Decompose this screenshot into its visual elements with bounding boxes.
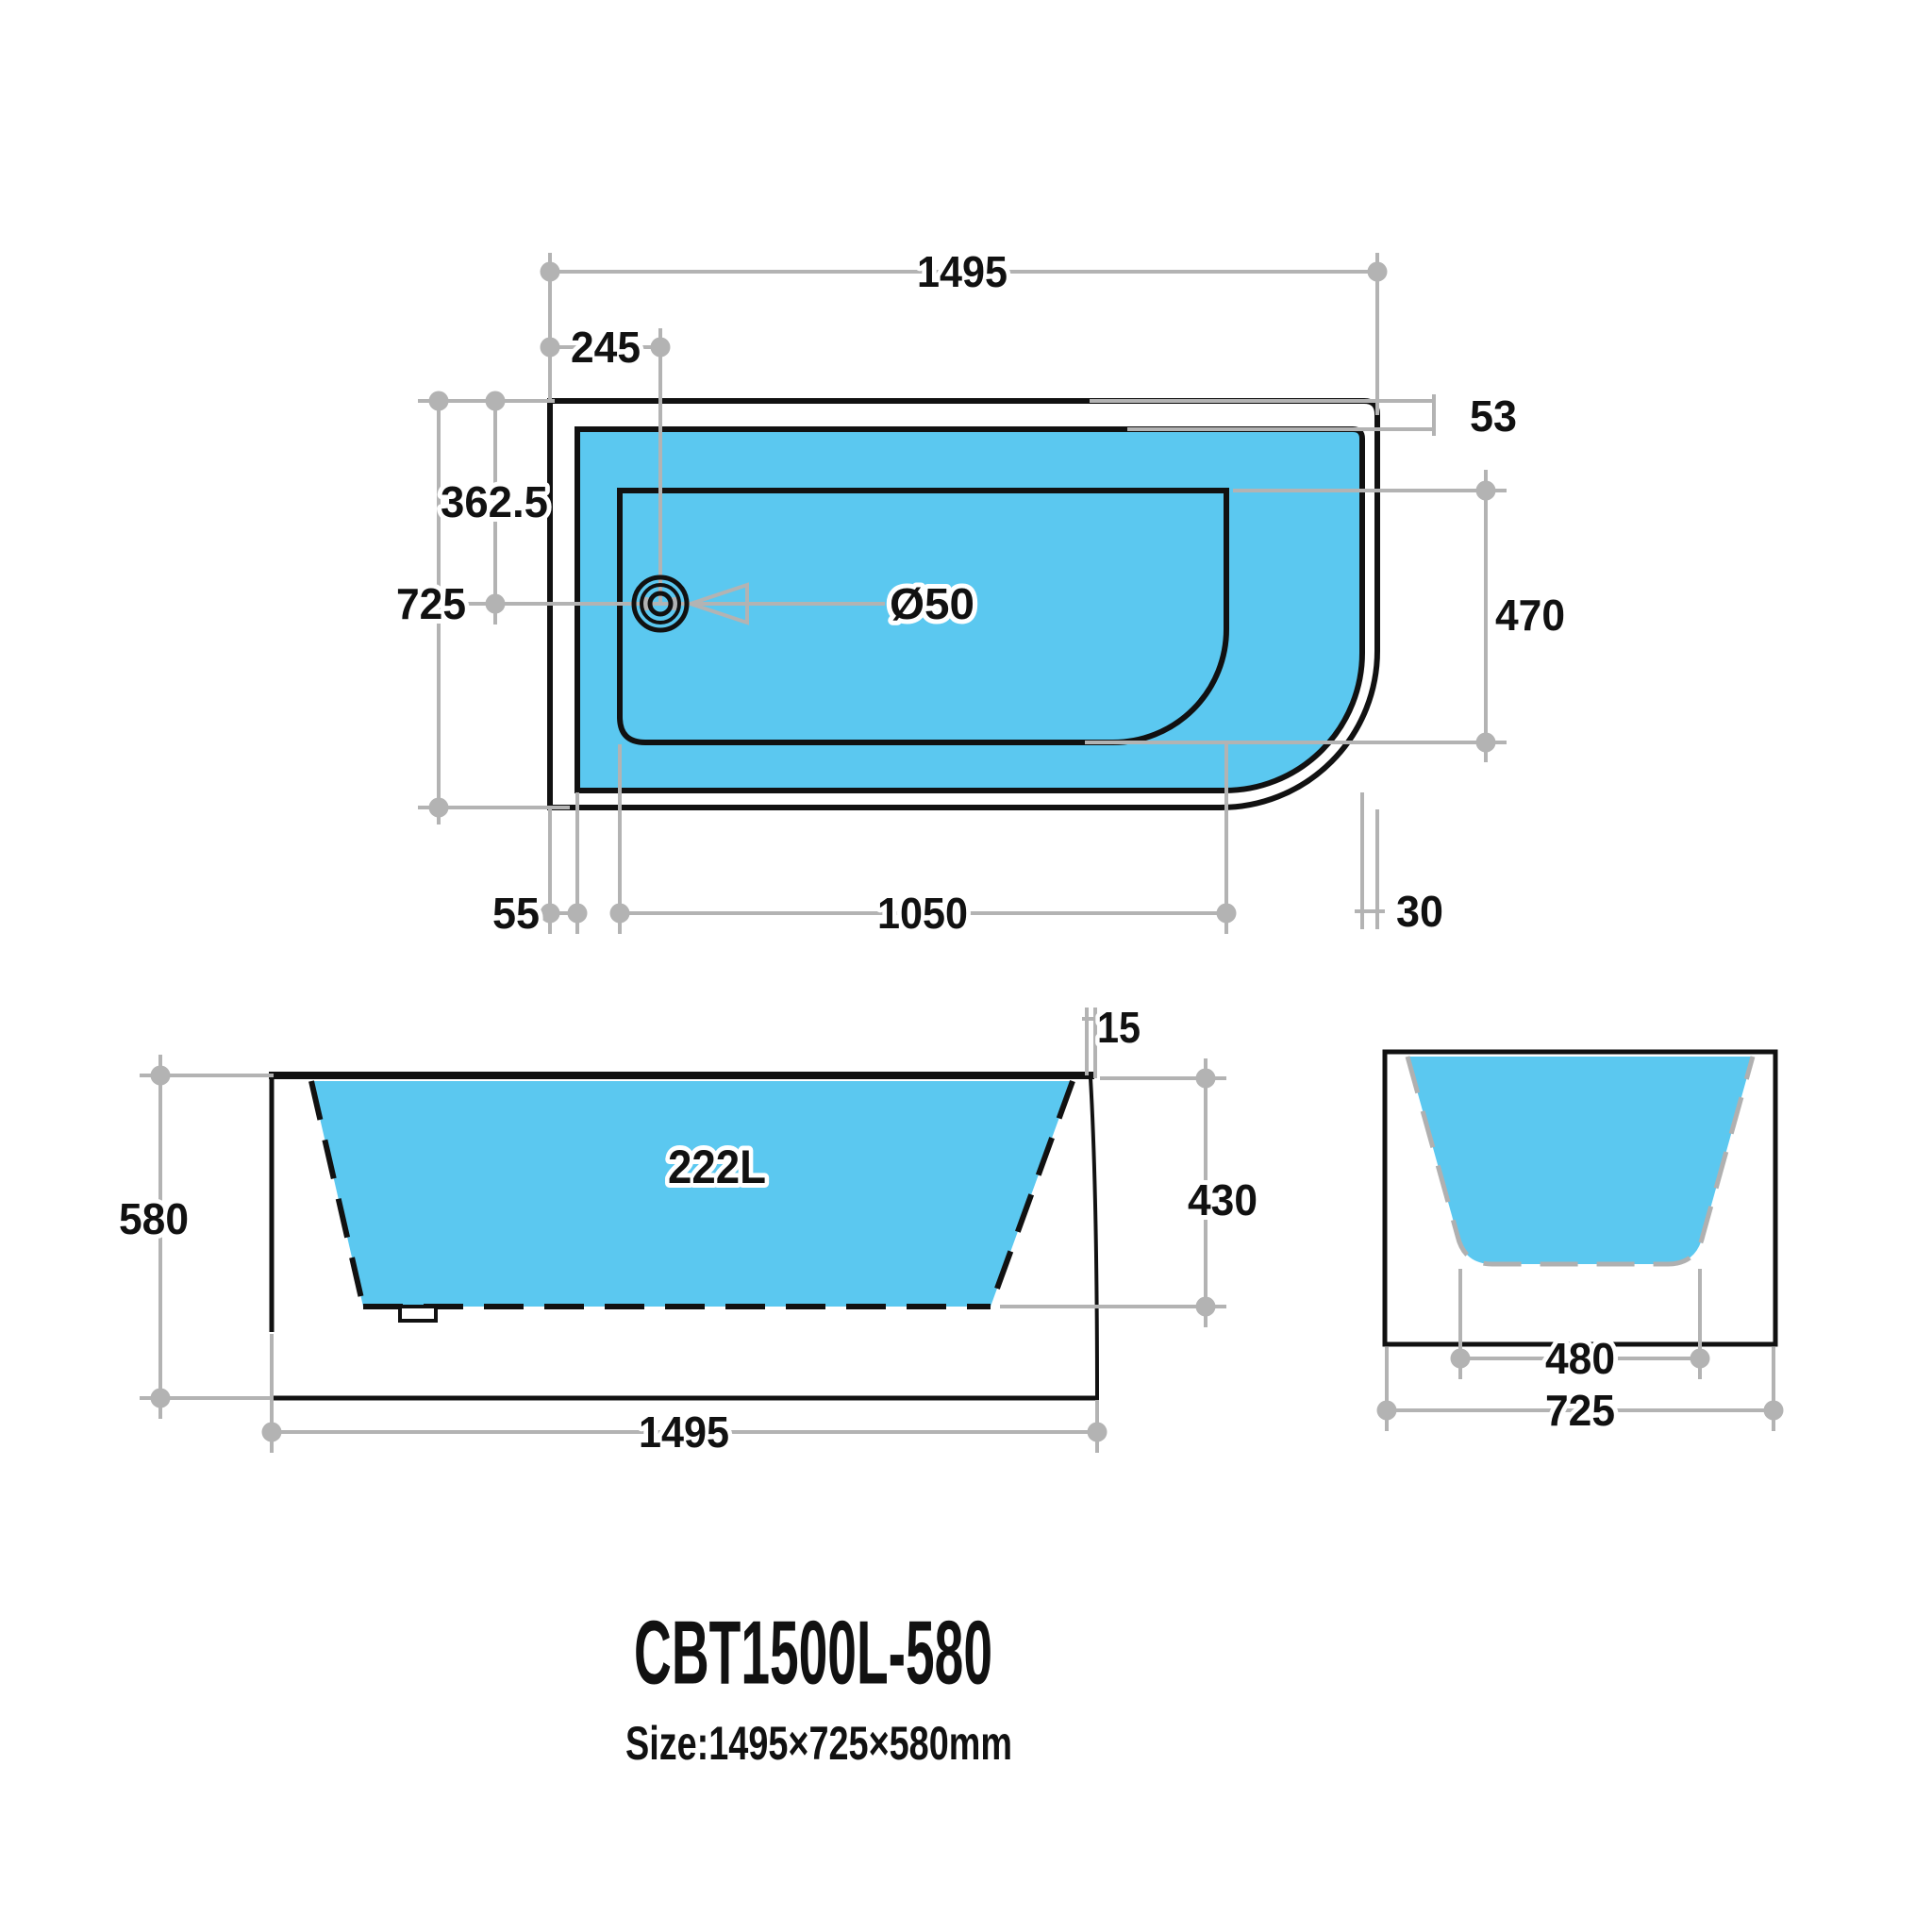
- dim-top-inner-length: 1050: [877, 889, 968, 938]
- technical-drawing: 1495 245 362.5 725 53 470 Ø50 55 1050 30: [0, 0, 1932, 1932]
- dim-front-inner-depth: 430: [1188, 1175, 1257, 1224]
- dim-end-overall-width: 725: [1545, 1386, 1615, 1435]
- dim-front-height: 580: [119, 1194, 189, 1243]
- waste-outlet: [400, 1307, 436, 1321]
- dim-front-length: 1495: [639, 1407, 729, 1457]
- title-block: CBT1500L-580 Size:1495×725×580mm: [625, 1603, 1012, 1771]
- volume-label: 222L: [668, 1141, 766, 1193]
- size-subtitle: Size:1495×725×580mm: [625, 1717, 1012, 1770]
- end-basin-fill: [1407, 1057, 1753, 1264]
- front-basin-fill: [311, 1081, 1073, 1307]
- end-view: 480 725: [1377, 1052, 1784, 1435]
- dim-top-half-width: 362.5: [441, 477, 548, 526]
- dim-front-rim-thickness: 15: [1097, 1003, 1141, 1052]
- front-view: 580 222L 15 430 1495: [119, 1003, 1257, 1457]
- dim-top-overall-length: 1495: [917, 247, 1008, 296]
- dim-end-bottom-width: 480: [1545, 1334, 1615, 1383]
- dim-top-left-wall: 55: [492, 889, 540, 938]
- dim-top-back-rim-gap: 53: [1470, 391, 1517, 441]
- dim-top-right-wall: 30: [1396, 887, 1443, 936]
- dim-drain-diameter: Ø50: [890, 579, 974, 628]
- top-view: 1495 245 362.5 725 53 470 Ø50 55 1050 30: [396, 247, 1565, 938]
- dim-top-drain-offset: 245: [571, 323, 641, 372]
- dim-top-overall-width: 725: [396, 579, 466, 628]
- model-title: CBT1500L-580: [634, 1603, 992, 1704]
- drawing-page: 1495 245 362.5 725 53 470 Ø50 55 1050 30: [0, 0, 1932, 1932]
- dim-top-inner-width: 470: [1495, 591, 1565, 640]
